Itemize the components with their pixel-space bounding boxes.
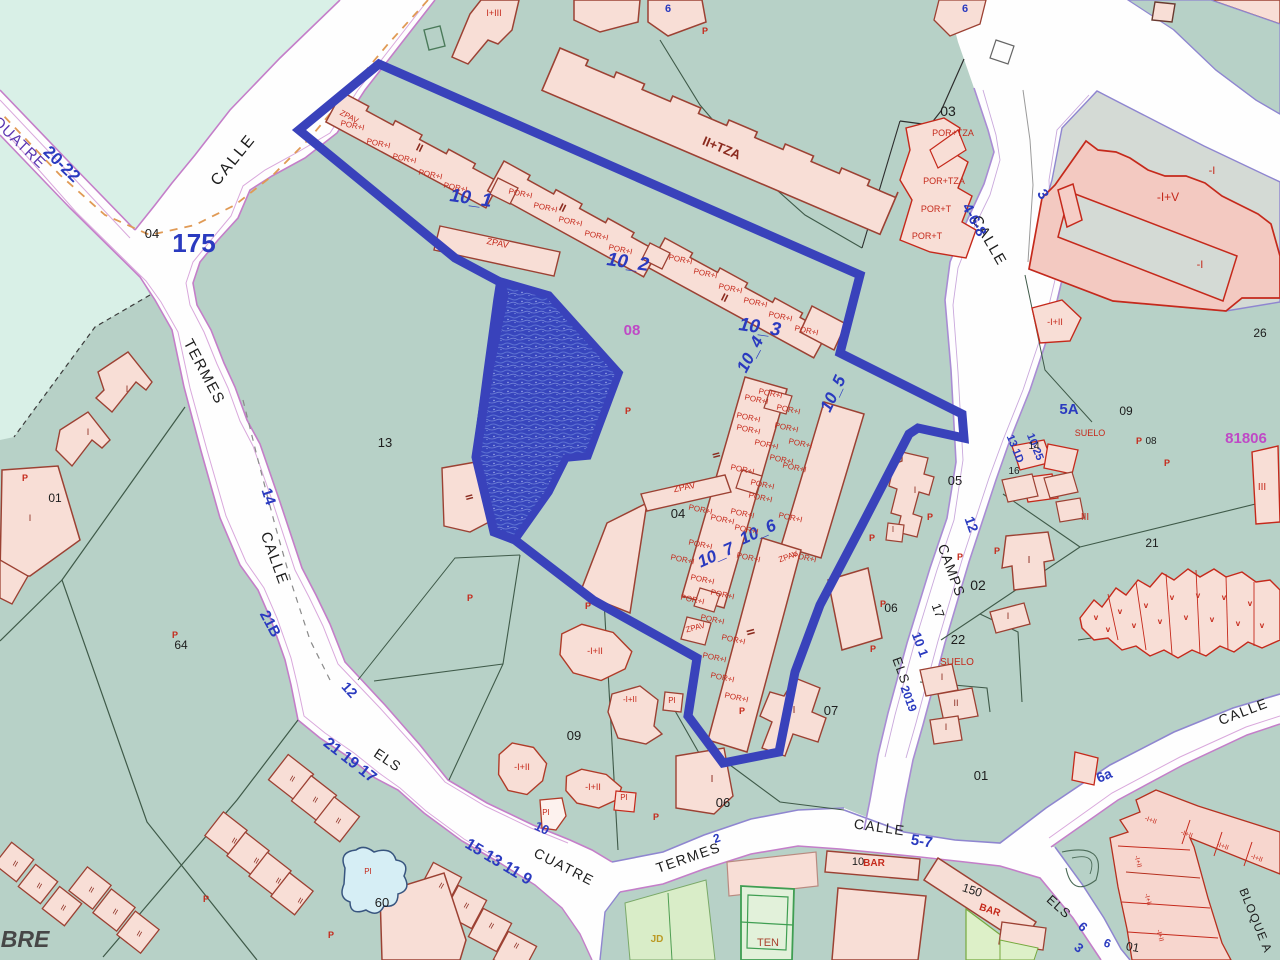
svg-text:81806: 81806 <box>1225 430 1267 447</box>
svg-text:I+III: I+III <box>486 8 501 18</box>
svg-text:26: 26 <box>1253 326 1267 340</box>
svg-text:P: P <box>957 552 963 562</box>
svg-text:-I+II: -I+II <box>514 762 530 772</box>
svg-text:5-7: 5-7 <box>910 831 934 851</box>
svg-text:POR+TZA: POR+TZA <box>932 128 974 138</box>
svg-text:16: 16 <box>1008 466 1020 477</box>
svg-text:P: P <box>739 706 745 716</box>
svg-text:08: 08 <box>624 322 641 339</box>
svg-text:P: P <box>702 26 708 36</box>
svg-text:I: I <box>941 672 944 682</box>
svg-text:06: 06 <box>716 795 730 810</box>
svg-text:PI: PI <box>668 696 676 705</box>
svg-text:v: v <box>1236 619 1241 628</box>
svg-text:I: I <box>126 384 129 394</box>
svg-text:v: v <box>1118 607 1123 616</box>
svg-text:06: 06 <box>884 601 898 615</box>
svg-text:P: P <box>22 473 28 483</box>
svg-text:II: II <box>953 698 958 708</box>
svg-text:03: 03 <box>940 103 956 119</box>
svg-text:04: 04 <box>671 506 685 521</box>
svg-text:v: v <box>1248 599 1253 608</box>
svg-text:P: P <box>172 630 178 640</box>
svg-text:BAR: BAR <box>863 858 885 869</box>
svg-text:P: P <box>625 406 631 416</box>
svg-text:III: III <box>1258 482 1266 493</box>
svg-text:v: v <box>1170 593 1175 602</box>
svg-text:175: 175 <box>172 228 215 258</box>
svg-text:60: 60 <box>375 895 389 910</box>
svg-text:v: v <box>1158 617 1163 626</box>
svg-text:I: I <box>29 513 32 523</box>
svg-text:I: I <box>793 705 796 716</box>
svg-text:POR+T: POR+T <box>921 204 952 214</box>
svg-text:01: 01 <box>48 491 62 505</box>
svg-text:P: P <box>1136 436 1142 446</box>
svg-text:POR+T: POR+T <box>912 231 943 241</box>
svg-text:5A: 5A <box>1059 401 1078 418</box>
svg-text:JD: JD <box>651 934 664 945</box>
svg-text:PI: PI <box>364 867 372 876</box>
svg-text:P: P <box>880 599 886 609</box>
svg-text:III: III <box>1081 512 1089 523</box>
svg-text:04: 04 <box>145 226 159 241</box>
svg-text:PI: PI <box>542 808 550 817</box>
svg-text:v: v <box>1184 613 1189 622</box>
svg-text:SUELO: SUELO <box>1075 428 1106 438</box>
svg-text:64: 64 <box>174 638 188 652</box>
svg-text:-I+II: -I+II <box>587 646 603 656</box>
svg-text:P: P <box>328 930 334 940</box>
svg-text:14: 14 <box>1028 441 1040 452</box>
svg-text:07: 07 <box>824 703 838 718</box>
svg-text:-I+II: -I+II <box>623 695 637 704</box>
svg-text:-I+V: -I+V <box>1157 190 1179 204</box>
svg-text:v: v <box>1196 591 1201 600</box>
svg-text:SUELO: SUELO <box>940 657 974 668</box>
svg-text:v: v <box>1210 615 1215 624</box>
svg-text:-I+II: -I+II <box>585 782 601 792</box>
svg-text:08: 08 <box>1145 436 1157 447</box>
svg-text:v: v <box>1260 621 1265 630</box>
svg-text:I: I <box>87 427 90 437</box>
svg-text:I: I <box>914 485 917 495</box>
svg-text:02: 02 <box>970 577 986 593</box>
svg-text:I: I <box>711 774 714 785</box>
svg-text:PI: PI <box>620 793 628 802</box>
svg-text:22: 22 <box>951 632 965 647</box>
svg-text:09: 09 <box>1119 404 1133 418</box>
svg-text:BRE: BRE <box>1 926 50 952</box>
svg-text:TEN: TEN <box>757 937 779 949</box>
svg-text:-I: -I <box>1209 165 1216 177</box>
svg-text:v: v <box>1106 625 1111 634</box>
svg-text:v: v <box>1222 593 1227 602</box>
svg-text:I: I <box>945 722 948 732</box>
svg-text:P: P <box>870 644 876 654</box>
svg-text:P: P <box>994 546 1000 556</box>
svg-text:-I+II: -I+II <box>1047 317 1063 327</box>
svg-text:I: I <box>892 525 894 534</box>
svg-text:P: P <box>467 593 473 603</box>
svg-text:13: 13 <box>378 435 392 450</box>
svg-text:POR+TZA: POR+TZA <box>923 176 965 186</box>
svg-text:P: P <box>203 894 209 904</box>
svg-text:6: 6 <box>962 3 968 15</box>
svg-text:v: v <box>1094 613 1099 622</box>
svg-text:v: v <box>1144 601 1149 610</box>
svg-text:I: I <box>1007 611 1010 621</box>
svg-text:6: 6 <box>665 3 671 15</box>
svg-text:P: P <box>869 533 875 543</box>
svg-text:21: 21 <box>1145 536 1159 550</box>
svg-text:01: 01 <box>1125 939 1141 955</box>
svg-text:01: 01 <box>974 768 988 783</box>
svg-text:09: 09 <box>567 728 581 743</box>
svg-text:05: 05 <box>948 473 962 488</box>
svg-text:-I: -I <box>1197 259 1204 271</box>
svg-text:I: I <box>1028 555 1031 566</box>
svg-text:v: v <box>1132 621 1137 630</box>
svg-text:P: P <box>585 601 591 611</box>
svg-text:P: P <box>927 512 933 522</box>
svg-text:P: P <box>1164 458 1170 468</box>
svg-text:P: P <box>653 812 659 822</box>
